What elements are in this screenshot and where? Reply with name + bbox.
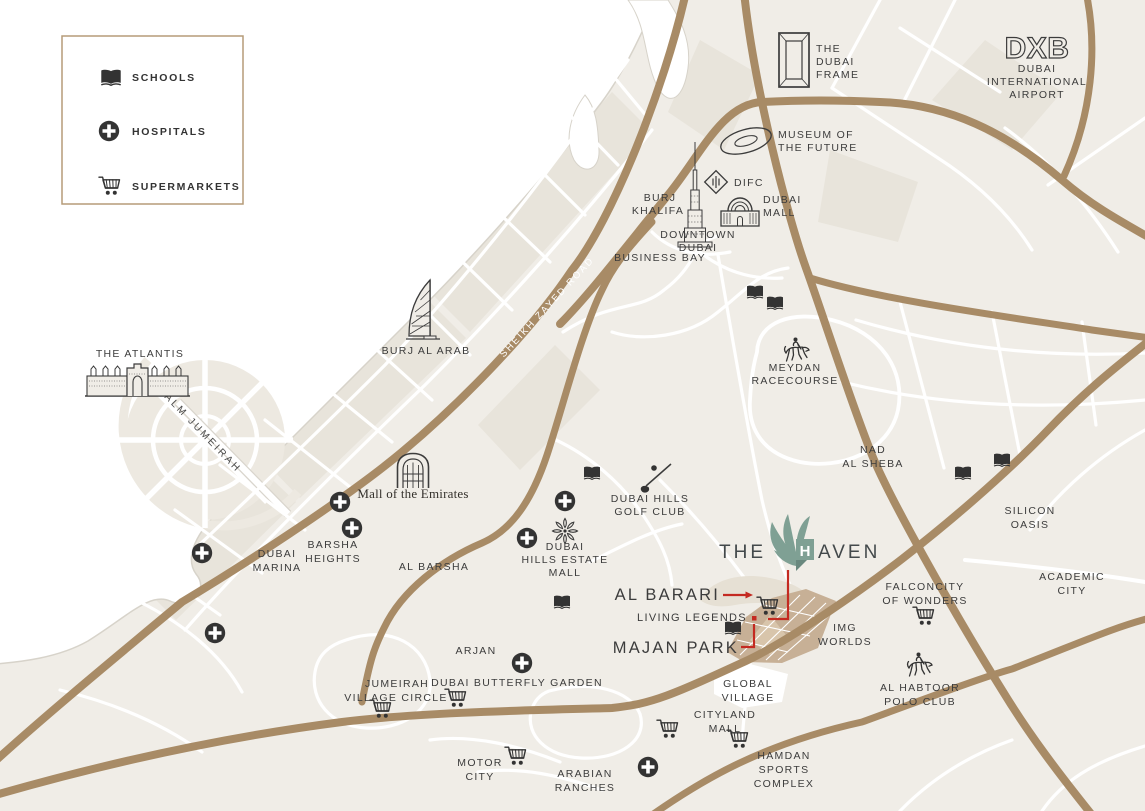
legend-hospitals-label: HOSPITALS — [132, 126, 207, 138]
falconcity-label: FALCONCITY — [886, 581, 965, 593]
silicon-oasis-label: SILICON — [1004, 505, 1055, 517]
dubai-mall-label: MALL — [763, 207, 796, 219]
arjan-label: ARJAN — [456, 645, 497, 657]
burj-khalifa-label: KHALIFA — [632, 205, 684, 217]
motor-city-label: CITY — [465, 771, 494, 783]
al-barari-label: AL BARARI — [615, 586, 720, 604]
dubai-marina-label: MARINA — [253, 562, 302, 574]
business-bay-label: BUSINESS BAY — [614, 252, 706, 264]
hospital-cross-icon — [99, 121, 119, 141]
haven-location-map: SHEIKH ZAYED ROAD PALM JUMEIRAH — [0, 0, 1145, 811]
brand-h: H — [800, 543, 811, 560]
cityland-mall-label: MALL — [709, 723, 742, 735]
map-canvas: SHEIKH ZAYED ROAD PALM JUMEIRAH — [0, 0, 1145, 811]
brand-the: THE — [719, 542, 766, 563]
hospital-icon — [555, 491, 575, 511]
museum-label: THE FUTURE — [778, 142, 858, 154]
atlantis-label: THE ATLANTIS — [96, 348, 184, 360]
dubai-hills-golf-label: GOLF CLUB — [614, 506, 685, 518]
meydan-label: MEYDAN — [769, 362, 822, 374]
legend-supermarkets-label: SUPERMARKETS — [132, 181, 241, 193]
brand-aven: AVEN — [818, 542, 880, 563]
hospital-icon — [638, 757, 658, 777]
motor-city-label: MOTOR — [457, 757, 502, 769]
dubai-marina-label: DUBAI — [258, 548, 297, 560]
img-worlds-label: WORLDS — [818, 636, 872, 648]
legend: SCHOOLS HOSPITALS SUPERMARKETS — [62, 36, 243, 204]
nad-al-sheba-label: NAD — [860, 444, 886, 456]
museum-label: MUSEUM OF — [778, 129, 854, 141]
dubai-frame-label: FRAME — [816, 69, 859, 81]
dubai-frame-label: DUBAI — [816, 56, 855, 68]
burj-al-arab-label: BURJ AL ARAB — [382, 345, 471, 357]
burj-khalifa-label: BURJ — [644, 192, 677, 204]
silicon-oasis-label: OASIS — [1011, 519, 1050, 531]
living-legends-label: LIVING LEGENDS — [637, 612, 747, 624]
hamdan-label: COMPLEX — [754, 778, 814, 790]
hamdan-label: SPORTS — [759, 764, 810, 776]
barsha-heights-label: HEIGHTS — [305, 553, 361, 565]
airport-label: AIRPORT — [1009, 89, 1065, 101]
legend-box — [62, 36, 243, 204]
airport-label: INTERNATIONAL — [987, 76, 1087, 88]
dubai-hills-mall-label: HILLS ESTATE — [522, 554, 609, 566]
academic-city-label: CITY — [1057, 585, 1086, 597]
arabian-ranches-label: RANCHES — [555, 782, 615, 794]
hospital-icon — [517, 528, 537, 548]
falconcity-label: OF WONDERS — [882, 595, 967, 607]
majan-park-dot — [752, 616, 757, 621]
al-habtoor-label: POLO CLUB — [884, 696, 956, 708]
hospital-icon — [205, 623, 225, 643]
hospital-icon — [512, 653, 532, 673]
hospital-icon — [192, 543, 212, 563]
cityland-mall-label: CITYLAND — [694, 709, 756, 721]
hamdan-label: HAMDAN — [757, 750, 810, 762]
downtown-label: DOWNTOWN — [660, 229, 736, 241]
hospital-icon — [330, 492, 350, 512]
mall-of-emirates-label: Mall of the Emirates — [357, 486, 468, 501]
arabian-ranches-label: ARABIAN — [557, 768, 612, 780]
dubai-mall-label: DUBAI — [763, 194, 802, 206]
global-village-label: GLOBAL — [723, 678, 773, 690]
barsha-heights-label: BARSHA — [308, 539, 359, 551]
global-village-label: VILLAGE — [722, 692, 775, 704]
img-worlds-label: IMG — [833, 622, 857, 634]
jvc-label: JUMEIRAH — [365, 678, 429, 690]
dubai-hills-mall-label: MALL — [549, 567, 582, 579]
al-barsha-label: AL BARSHA — [399, 561, 469, 573]
meydan-label: RACECOURSE — [751, 375, 838, 387]
legend-schools-label: SCHOOLS — [132, 72, 196, 84]
dubai-hills-golf-label: DUBAI HILLS — [611, 493, 690, 505]
academic-city-label: ACADEMIC — [1039, 571, 1105, 583]
airport-label: DUBAI — [1018, 63, 1057, 75]
nad-al-sheba-label: AL SHEBA — [842, 458, 903, 470]
hospital-icon — [342, 518, 362, 538]
jvc-label: VILLAGE CIRCLE — [344, 692, 447, 704]
dubai-hills-mall-label: DUBAI — [546, 541, 585, 553]
dxb-logo: DXB — [1005, 32, 1070, 65]
difc-label: DIFC — [734, 177, 764, 189]
dubai-frame-label: THE — [816, 43, 841, 55]
al-habtoor-label: AL HABTOOR — [880, 682, 960, 694]
butterfly-garden-label: DUBAI BUTTERFLY GARDEN — [431, 677, 603, 689]
majan-park-label: MAJAN PARK — [613, 639, 739, 657]
